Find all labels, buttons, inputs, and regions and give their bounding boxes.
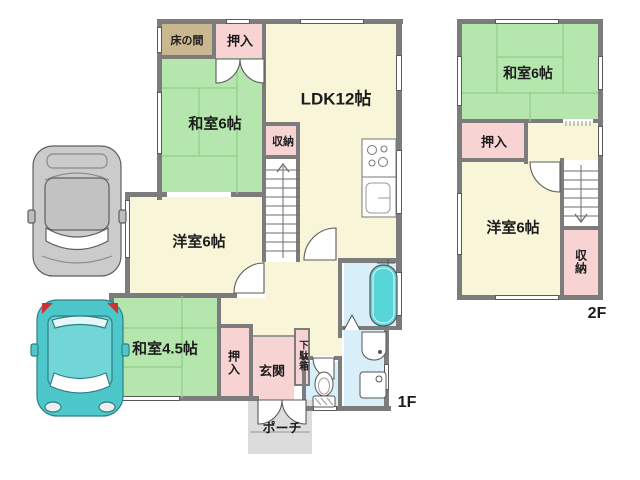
wall <box>217 297 221 400</box>
room-label-shuno-2f: 収納 <box>573 249 590 275</box>
wall <box>212 19 216 59</box>
room-label-genkan: 玄関 <box>259 361 285 380</box>
window <box>495 19 559 24</box>
room-washroom <box>344 330 386 410</box>
window <box>109 302 114 324</box>
hallway-2f <box>528 122 598 160</box>
wall <box>560 226 603 230</box>
floor-label-1f: 1F <box>398 394 417 412</box>
staircase-2f <box>564 162 598 228</box>
window <box>396 150 402 214</box>
window <box>598 56 603 90</box>
room-label-yoshitsu6-1f: 洋室6帖 <box>172 231 225 252</box>
room-label-tokonoma: 床の間 <box>171 32 204 48</box>
room-label-oshiire-bottom: 押入 <box>226 350 243 376</box>
window <box>457 193 462 255</box>
wall <box>457 158 527 162</box>
room-label-washitsu45: 和室4.5帖 <box>132 338 198 359</box>
wall <box>157 55 214 59</box>
window <box>598 126 603 156</box>
room-label-oshiire-2f: 押入 <box>481 132 507 151</box>
window <box>384 364 389 390</box>
wall <box>157 19 403 24</box>
wall <box>338 326 402 330</box>
window <box>313 406 337 411</box>
door-opening <box>313 356 334 360</box>
staircase-1f <box>266 158 300 262</box>
wall <box>262 122 300 126</box>
wall <box>249 328 253 400</box>
hallway-1f-south <box>306 336 342 358</box>
window <box>125 200 130 258</box>
wall <box>262 19 266 262</box>
window <box>109 354 114 394</box>
floorplan: 床の間 押入 和室6帖 LDK12帖 収納 洋室6帖 和室4.5帖 押入 玄関 … <box>0 0 640 480</box>
room-label-getabako: 下駄箱 <box>295 340 309 372</box>
wall <box>296 122 300 262</box>
wall <box>262 155 300 159</box>
window <box>396 55 402 91</box>
wall <box>217 324 253 328</box>
window <box>157 27 162 53</box>
room-label-washitsu6-1f: 和室6帖 <box>188 113 241 134</box>
wall <box>338 356 342 410</box>
room-label-ldk: LDK12帖 <box>301 85 372 110</box>
window <box>226 19 250 24</box>
stair-opening <box>563 119 593 123</box>
window <box>120 396 180 401</box>
sliding-door-opening <box>167 192 231 197</box>
window <box>396 272 402 316</box>
window <box>300 19 364 24</box>
floor-label-2f: 2F <box>588 305 607 323</box>
room-label-oshiire-top: 押入 <box>227 31 253 50</box>
window <box>457 56 462 106</box>
hallway-1f <box>266 262 342 338</box>
car-gray-icon <box>28 146 126 276</box>
window <box>157 92 162 154</box>
wall <box>338 258 402 263</box>
room-label-yoshitsu6-2f: 洋室6帖 <box>486 217 539 238</box>
room-label-shuno-1f: 収納 <box>272 133 294 149</box>
door-opening <box>237 293 265 298</box>
window <box>495 295 559 300</box>
room-label-porch: ポーチ <box>262 418 301 437</box>
room-label-washitsu6-2f: 和室6帖 <box>503 63 553 83</box>
room-bathroom <box>344 263 396 330</box>
